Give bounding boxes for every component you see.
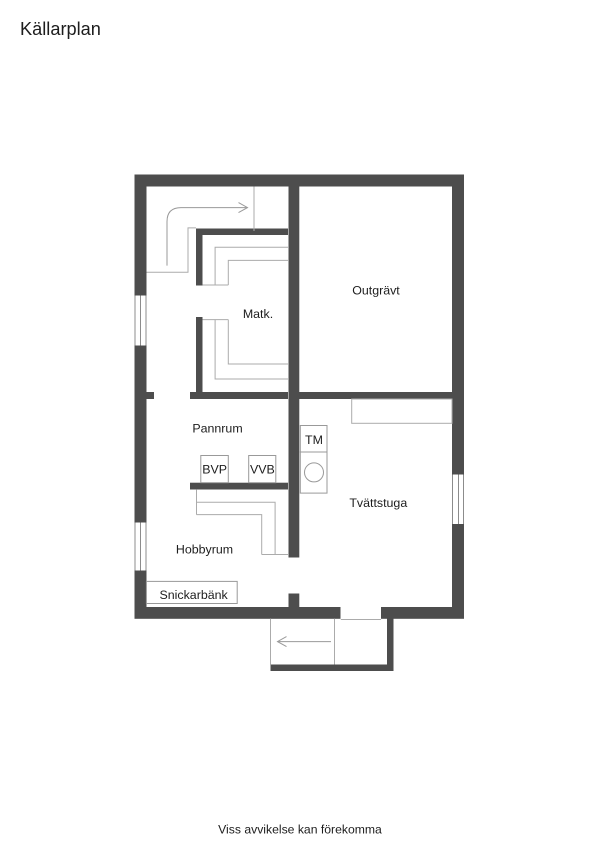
svg-text:BVP: BVP bbox=[202, 463, 227, 477]
svg-text:Källarplan: Källarplan bbox=[20, 19, 101, 39]
svg-text:VVB: VVB bbox=[250, 463, 275, 477]
svg-text:Snickarbänk: Snickarbänk bbox=[160, 588, 229, 602]
svg-text:Tvättstuga: Tvättstuga bbox=[349, 496, 407, 510]
svg-text:Pannrum: Pannrum bbox=[192, 422, 242, 436]
svg-text:Matk.: Matk. bbox=[243, 307, 273, 321]
svg-text:Outgrävt: Outgrävt bbox=[352, 283, 400, 297]
svg-text:Hobbyrum: Hobbyrum bbox=[176, 543, 233, 557]
svg-text:Viss avvikelse kan förekomma: Viss avvikelse kan förekomma bbox=[218, 823, 382, 837]
svg-text:TM: TM bbox=[305, 433, 323, 447]
